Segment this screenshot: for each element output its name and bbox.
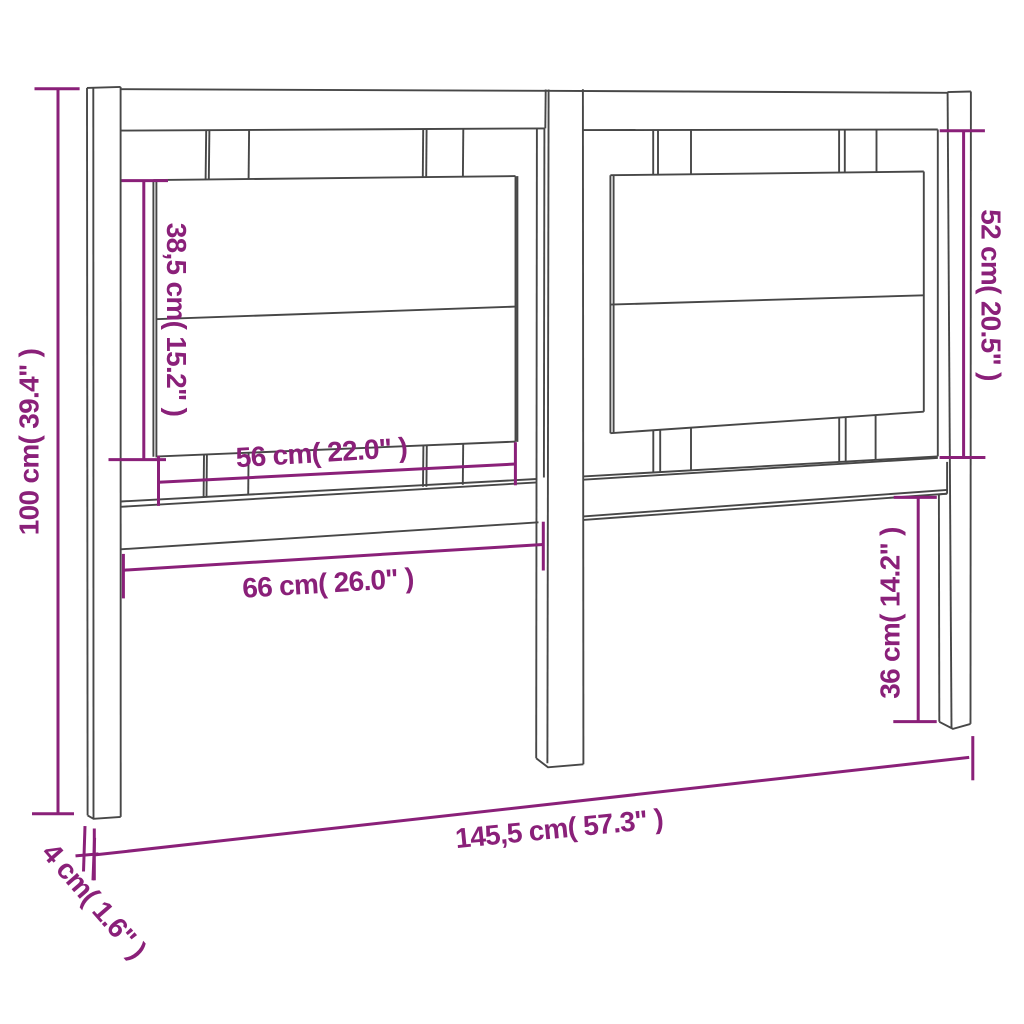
svg-text:52 cm( 20.5" ): 52 cm( 20.5" ) (976, 209, 1007, 381)
svg-text:100 cm( 39.4" ): 100 cm( 39.4" ) (13, 349, 44, 535)
svg-text:36 cm( 14.2" ): 36 cm( 14.2" ) (875, 527, 906, 699)
svg-text:38,5 cm( 15.2" ): 38,5 cm( 15.2" ) (161, 223, 192, 417)
